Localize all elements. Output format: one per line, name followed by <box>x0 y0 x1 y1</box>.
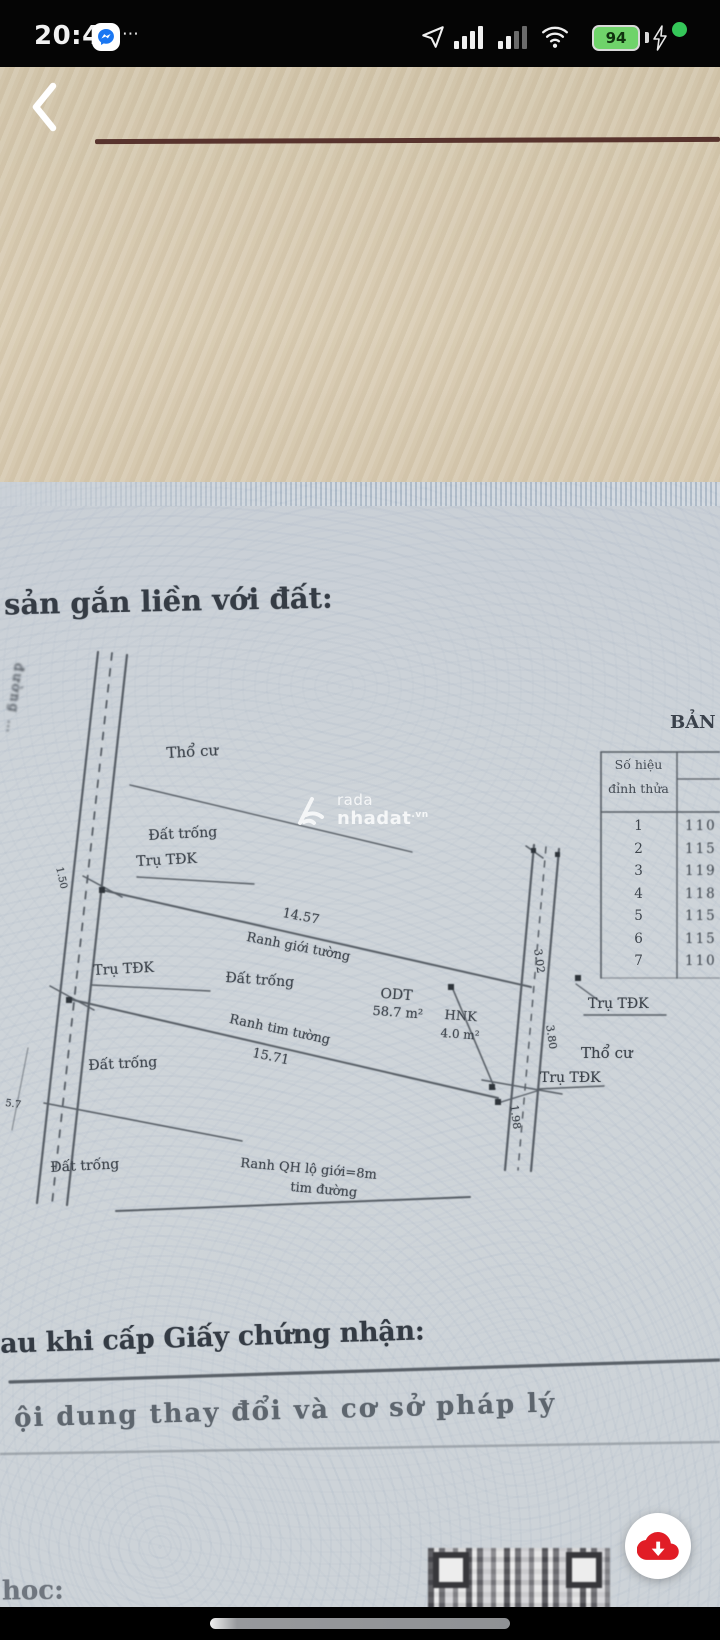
status-bar: 20:49 ⋯ 94 <box>0 0 720 67</box>
bottom-navigation-bar <box>0 1607 720 1640</box>
watermark-text: rada nhadat.vn <box>337 793 429 828</box>
battery-percent: 94 <box>606 31 627 46</box>
table-row-num: 4 <box>600 886 677 902</box>
table-header-line1: Số hiệu <box>600 757 677 772</box>
gesture-home-bar[interactable] <box>210 1618 510 1629</box>
map-label-tru-tdk-3: Trụ TĐK <box>588 996 649 1012</box>
certificate-heading-fragment: sản gắn liền với đất: <box>4 581 333 622</box>
map-label-tru-tdk-4: Trụ TĐK <box>540 1070 601 1086</box>
table-row-val: 110 <box>685 953 717 969</box>
chevron-left-icon <box>29 80 59 134</box>
qr-finder-right <box>566 1552 602 1588</box>
table-row-num: 3 <box>600 863 677 879</box>
table-row-val: 115 <box>685 841 717 857</box>
cloud-download-icon <box>637 1529 679 1563</box>
table-header-line2: đỉnh thửa <box>600 781 677 796</box>
map-area-4-0: 4.0 m² <box>440 1026 480 1043</box>
phone-screen: 20:49 ⋯ 94 <box>0 0 720 1640</box>
back-button[interactable] <box>16 79 72 135</box>
table-row-num: 2 <box>600 841 677 857</box>
paper-guilloche-edge <box>0 482 720 506</box>
table-row-num: 1 <box>600 818 677 834</box>
wifi-icon <box>540 24 570 50</box>
map-label-tru-tdk-1: Trụ TĐK <box>136 851 197 870</box>
location-arrow-icon <box>420 24 446 50</box>
rada-nhadat-logo-icon <box>292 791 330 829</box>
battery-indicator: 94 <box>592 25 640 51</box>
qr-code <box>428 1548 610 1608</box>
table-row-num: 5 <box>600 908 677 924</box>
battery-nub <box>645 32 649 43</box>
table-row-val: 118 <box>685 886 717 902</box>
map-label-hnk: HNK <box>444 1008 477 1025</box>
map-dimension-5-7: 5.7 <box>4 1098 21 1111</box>
map-label-tho-cu-2: Thổ cư <box>581 1044 633 1062</box>
table-title: BẢN <box>670 712 716 733</box>
cellular-signal-icon <box>454 24 488 50</box>
messenger-icon <box>95 26 117 48</box>
map-label-tho-cu-1: Thổ cư <box>166 741 219 762</box>
table-row-val: 119 <box>685 863 717 879</box>
privacy-indicator-dot <box>672 22 687 37</box>
watermark-suffix: .vn <box>411 810 428 820</box>
table-row-val: 110 <box>685 818 717 834</box>
charging-bolt-icon <box>651 24 669 52</box>
table-fabric-background <box>0 67 720 497</box>
more-notifications-icon: ⋯ <box>122 24 140 44</box>
map-label-odt: ODT <box>380 986 413 1004</box>
download-button[interactable] <box>625 1513 691 1579</box>
watermark-line2: nhadat.vn <box>337 810 429 828</box>
watermark-line1: rada <box>337 793 429 808</box>
table-row-num: 7 <box>600 953 677 969</box>
cellular-signal-2-icon <box>498 24 532 50</box>
watermark-rada-nhadat: rada nhadat.vn <box>292 791 429 829</box>
messenger-notification-icon <box>92 23 120 51</box>
table-row-val: 115 <box>685 931 717 947</box>
qr-finder-left <box>433 1552 469 1588</box>
table-row-num: 6 <box>600 931 677 947</box>
bottom-text-fragment: hoc: <box>2 1575 64 1606</box>
map-label-tru-tdk-2: Trụ TĐK <box>93 960 154 979</box>
table-row-val: 115 <box>685 908 717 924</box>
